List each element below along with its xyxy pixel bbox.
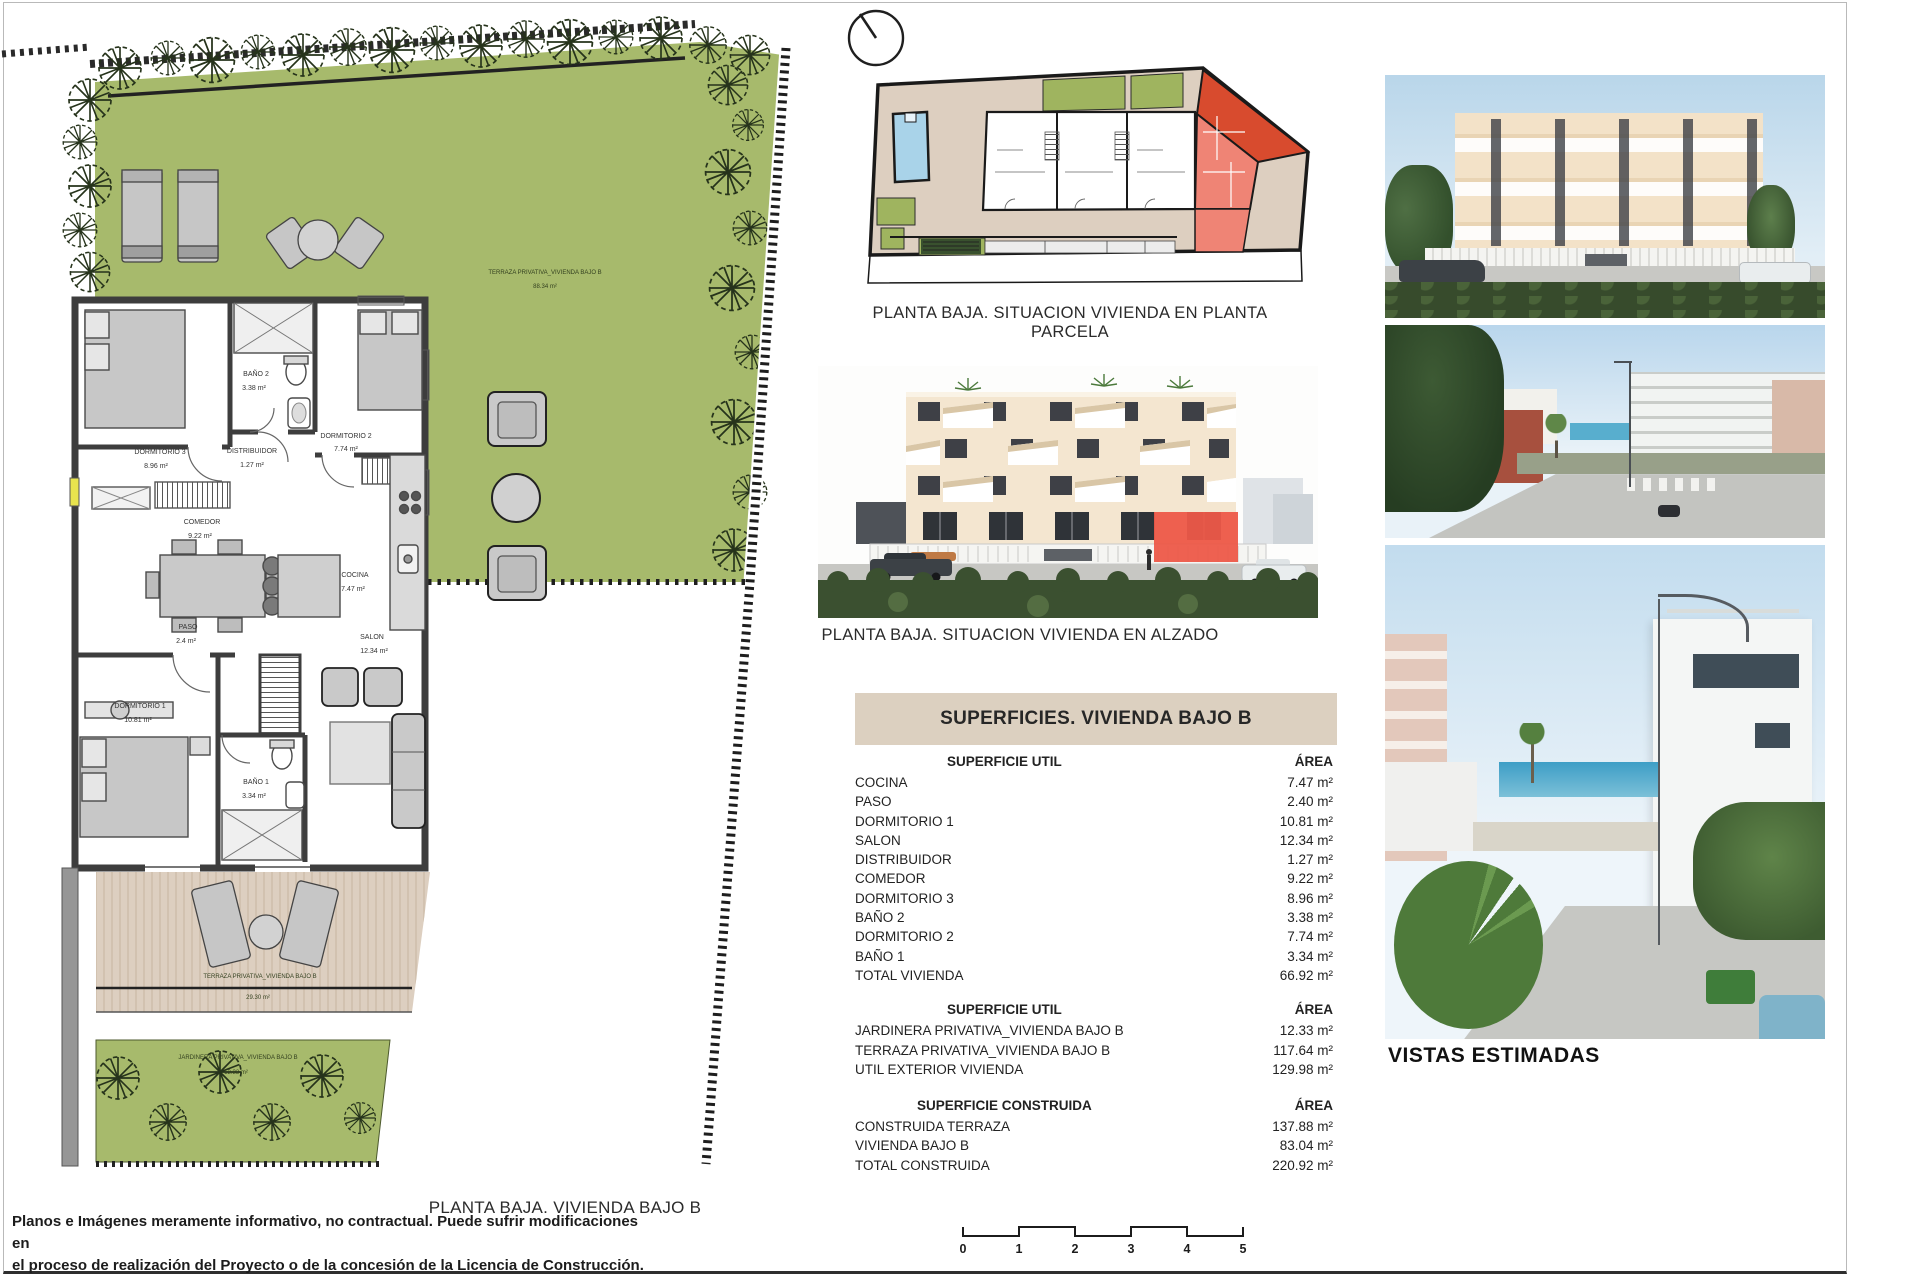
- elevation-render: [818, 366, 1318, 618]
- svg-text:10.81 m²: 10.81 m²: [124, 717, 152, 724]
- floor-plan: TERRAZA PRIVATIVA_VIVIENDA BAJO B 88.34 …: [0, 0, 800, 1200]
- entrance-sign: [1044, 549, 1092, 561]
- scale-tick: 1: [1016, 1242, 1023, 1256]
- trees-right: [1693, 802, 1825, 940]
- scale-tick: 4: [1184, 1242, 1191, 1256]
- svg-text:COMEDOR: COMEDOR: [184, 519, 221, 526]
- blue-car: [1759, 995, 1825, 1039]
- sign: [1585, 254, 1627, 266]
- elevation-caption: PLANTA BAJA. SITUACION VIVIENDA EN ALZAD…: [800, 626, 1240, 645]
- crosswalk: [1627, 478, 1715, 491]
- site-plan: [845, 52, 1325, 302]
- table-row: TERRAZA PRIVATIVA_VIVIENDA BAJO B117.64 …: [855, 1041, 1337, 1060]
- scale-bar: 0 1 2 3 4 5: [955, 1212, 1255, 1262]
- table-row: CONSTRUIDA TERRAZA137.88 m²: [855, 1117, 1337, 1136]
- table-row: BAÑO 23.38 m²: [855, 908, 1337, 927]
- jardinera: JARDINERA PRIVATIVA_VIVIENDA BAJO B 12.3…: [96, 1040, 390, 1164]
- disclaimer: Planos e Imágenes meramente informativo,…: [12, 1211, 652, 1277]
- palm-tree: [1517, 723, 1547, 783]
- svg-text:8.96 m²: 8.96 m²: [144, 463, 168, 470]
- svg-text:3.34 m²: 3.34 m²: [242, 793, 266, 800]
- scooter: [1658, 505, 1680, 517]
- table-row: COMEDOR9.22 m²: [855, 869, 1337, 888]
- svg-text:BAÑO 1: BAÑO 1: [243, 777, 269, 786]
- disclaimer-line2: el proceso de realización del Proyecto o…: [12, 1255, 652, 1277]
- svg-text:PASO: PASO: [179, 624, 198, 631]
- table-row: SALON12.34 m²: [855, 831, 1337, 850]
- svg-text:DORMITORIO 3: DORMITORIO 3: [134, 449, 185, 456]
- table-row: JARDINERA PRIVATIVA_VIVIENDA BAJO B12.33…: [855, 1021, 1337, 1040]
- pine-trees: [1385, 325, 1504, 512]
- table-row: TOTAL CONSTRUIDA220.92 m²: [855, 1156, 1337, 1175]
- siteplan-caption: PLANTA BAJA. SITUACION VIVIENDA EN PLANT…: [835, 304, 1305, 342]
- svg-text:BAÑO 2: BAÑO 2: [243, 369, 269, 378]
- scale-tick: 0: [960, 1242, 967, 1256]
- pink-building: [1772, 380, 1825, 452]
- scale-tick: 2: [1072, 1242, 1079, 1256]
- table-row: VIVIENDA BAJO B83.04 m²: [855, 1136, 1337, 1155]
- svg-text:1.27 m²: 1.27 m²: [240, 462, 264, 469]
- svg-text:7.74 m²: 7.74 m²: [334, 446, 358, 453]
- photo-facade-view: [1385, 75, 1825, 318]
- svg-text:COCINA: COCINA: [341, 572, 369, 579]
- disclaimer-line1: Planos e Imágenes meramente informativo,…: [12, 1211, 652, 1255]
- car-white: [1739, 262, 1811, 284]
- window-marker: [70, 478, 79, 506]
- green-container: [1706, 970, 1754, 1005]
- photo-street-view: [1385, 325, 1825, 538]
- street-lamp-pole: [1658, 599, 1661, 945]
- photo-sea-view: [1385, 545, 1825, 1039]
- surface-table: SUPERFICIES. VIVIENDA BAJO B SUPERFICIE …: [855, 693, 1337, 1175]
- beach-wall: [1473, 822, 1658, 852]
- table-row: COCINA7.47 m²: [855, 773, 1337, 792]
- table-row: UTIL EXTERIOR VIVIENDA129.98 m²: [855, 1060, 1337, 1079]
- table-row: TOTAL VIVIENDA66.92 m²: [855, 966, 1337, 985]
- svg-text:2.4 m²: 2.4 m²: [176, 638, 197, 645]
- svg-text:3.38 m²: 3.38 m²: [242, 385, 266, 392]
- section-header: SUPERFICIE UTIL ÁREA: [855, 751, 1337, 773]
- yucca-plant: [1394, 861, 1544, 1029]
- section-header: SUPERFICIE CONSTRUIDA ÁREA: [855, 1095, 1337, 1117]
- svg-text:DORMITORIO 1: DORMITORIO 1: [114, 703, 165, 710]
- white-building-left: [1385, 762, 1477, 851]
- car-dark: [1399, 260, 1485, 282]
- svg-text:SALON: SALON: [360, 634, 384, 641]
- palm-tree: [1543, 414, 1569, 458]
- section-header: SUPERFICIE UTIL ÁREA: [855, 999, 1337, 1021]
- jardinera-label: JARDINERA PRIVATIVA_VIVIENDA BAJO B: [178, 1055, 297, 1061]
- terrace-label: TERRAZA PRIVATIVA_VIVIENDA BAJO B: [203, 974, 316, 980]
- tower-windows: [1693, 654, 1799, 689]
- scale-tick: 3: [1128, 1242, 1135, 1256]
- table-row: PASO2.40 m²: [855, 792, 1337, 811]
- svg-text:9.22 m²: 9.22 m²: [188, 533, 212, 540]
- surface-table-title: SUPERFICIES. VIVIENDA BAJO B: [855, 693, 1337, 745]
- table-row: DORMITORIO 27.74 m²: [855, 927, 1337, 946]
- table-row: BAÑO 13.34 m²: [855, 947, 1337, 966]
- svg-text:12.34 m²: 12.34 m²: [360, 648, 388, 655]
- garden-area: 88.34 m²: [533, 284, 557, 290]
- unit-highlight: [1154, 512, 1238, 562]
- table-row: DORMITORIO 38.96 m²: [855, 889, 1337, 908]
- photos-caption: VISTAS ESTIMADAS: [1388, 1044, 1600, 1068]
- scale-tick: 5: [1240, 1242, 1247, 1256]
- jardinera-area: 12.33 m²: [224, 1070, 248, 1076]
- svg-text:DISTRIBUIDOR: DISTRIBUIDOR: [227, 448, 277, 455]
- terrace-area: 29.30 m²: [246, 995, 270, 1001]
- building-units: [983, 112, 1195, 210]
- garden-label: TERRAZA PRIVATIVA_VIVIENDA BAJO B: [488, 270, 601, 276]
- svg-text:DORMITORIO 2: DORMITORIO 2: [320, 433, 371, 440]
- table-row: DORMITORIO 110.81 m²: [855, 812, 1337, 831]
- side-building: [856, 502, 908, 544]
- svg-text:7.47 m²: 7.47 m²: [341, 586, 365, 593]
- hedge: [1385, 282, 1825, 318]
- street-lamp: [1629, 363, 1631, 487]
- table-row: DISTRIBUIDOR1.27 m²: [855, 850, 1337, 869]
